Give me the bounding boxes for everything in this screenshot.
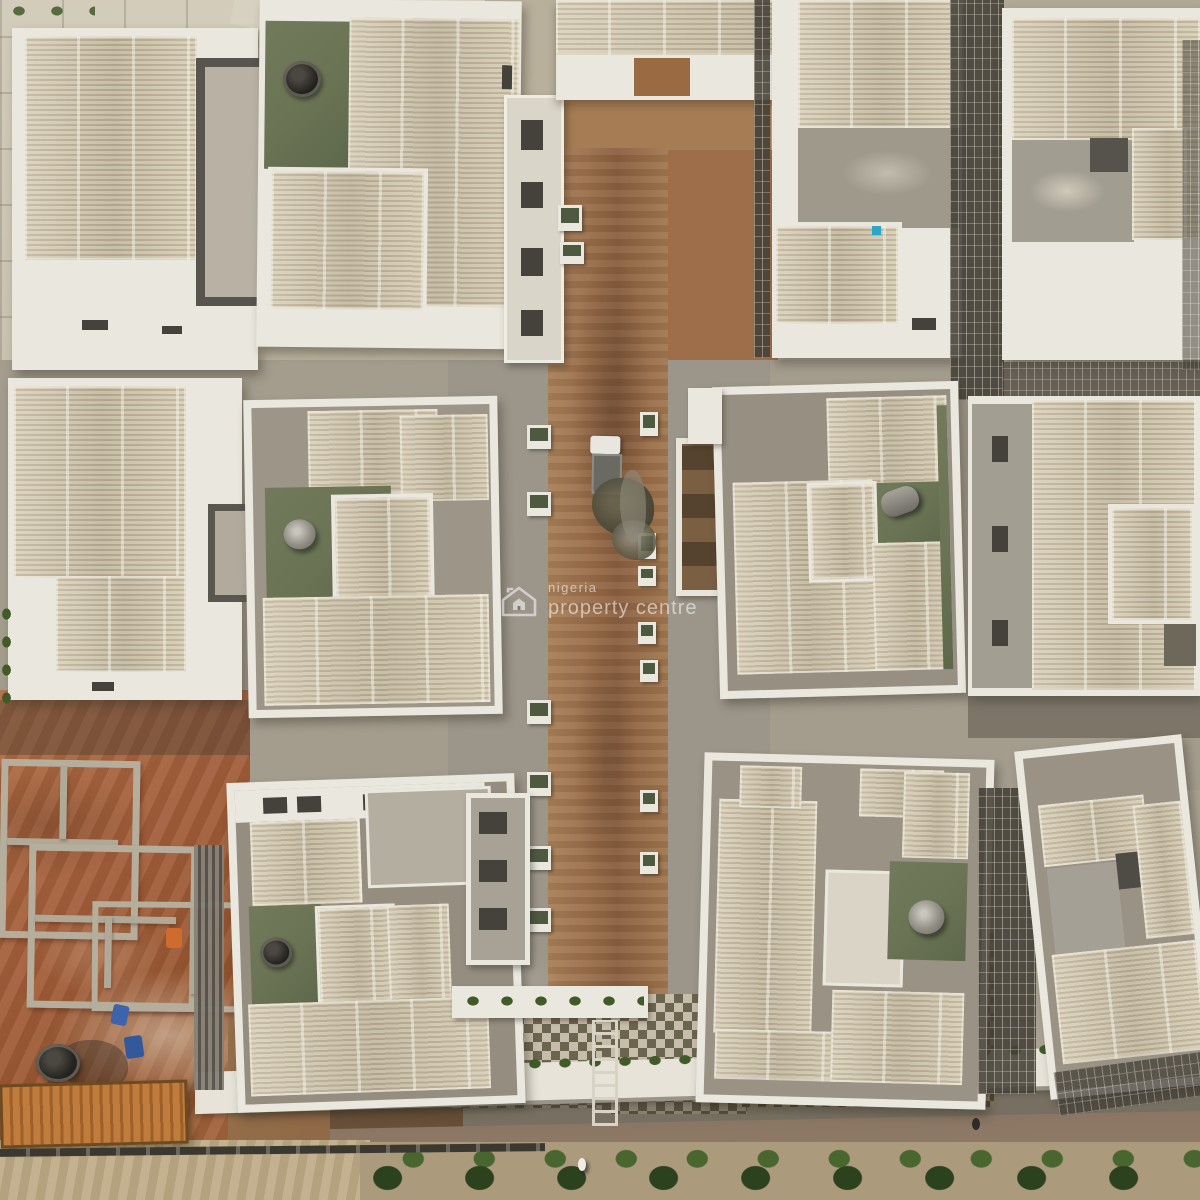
planter-shrubs xyxy=(456,992,644,1010)
weeds-left-edge xyxy=(0,600,13,710)
blue-marker xyxy=(872,226,881,235)
corrugated-roof xyxy=(1132,801,1194,939)
scaffolding xyxy=(754,0,770,358)
road-planter xyxy=(640,790,658,812)
building-bottom-center-right xyxy=(695,752,994,1109)
window-opening xyxy=(992,526,1008,552)
roof-opening xyxy=(297,796,322,813)
corrugated-roof xyxy=(263,594,491,706)
ladder xyxy=(592,1020,618,1126)
window-opening xyxy=(992,620,1008,646)
roof-opening xyxy=(263,797,288,814)
water-tank xyxy=(283,61,321,97)
corrugated-roof xyxy=(798,0,960,128)
water-tank xyxy=(36,1044,80,1082)
corrugated-roof xyxy=(1108,504,1196,624)
window-opening xyxy=(521,248,543,276)
building-top-left xyxy=(12,28,258,370)
building-shadow xyxy=(0,700,250,755)
road-planter xyxy=(640,852,658,874)
corrugated-roof xyxy=(714,1029,837,1082)
timber-stack xyxy=(194,845,224,1090)
small-white-structure xyxy=(688,388,722,444)
roof-opening xyxy=(162,326,182,334)
corrugated-roof xyxy=(267,167,429,315)
road-planter xyxy=(527,908,551,932)
corrugated-roof xyxy=(830,990,964,1085)
road-planter xyxy=(527,492,551,516)
corrugated-roof xyxy=(56,576,186,672)
building-middle-center-left xyxy=(243,396,503,718)
corrugated-roof xyxy=(772,222,902,328)
scaffolding xyxy=(1182,40,1200,370)
person xyxy=(972,1118,980,1130)
building-middle-left xyxy=(8,378,242,700)
road-side-structure xyxy=(504,95,564,363)
roof-notch xyxy=(1164,624,1196,666)
corrugated-roof xyxy=(713,799,817,1035)
roof-opening xyxy=(92,682,114,691)
building-middle-right xyxy=(968,396,1200,696)
window-opening xyxy=(521,182,543,208)
corrugated-roof xyxy=(25,36,197,260)
building-shadow xyxy=(968,696,1200,738)
blue-tarp xyxy=(124,1035,145,1059)
corrugated-roof xyxy=(250,818,363,906)
truck-cab xyxy=(590,436,620,455)
orange-equipment xyxy=(166,928,182,948)
window-opening xyxy=(992,436,1008,462)
opening xyxy=(479,908,507,930)
building-top-right-center xyxy=(772,0,962,358)
corrugated-roof xyxy=(806,481,879,583)
road-planter xyxy=(558,205,582,231)
person xyxy=(578,1158,586,1171)
corrugated-roof xyxy=(331,493,435,607)
window-opening xyxy=(521,310,543,336)
building-middle-center-right xyxy=(712,381,966,699)
road-planter xyxy=(640,660,658,682)
weeds-top-left xyxy=(0,0,95,42)
concrete-courtyard xyxy=(798,128,960,228)
plywood-door xyxy=(634,58,690,96)
road-planter xyxy=(527,772,551,796)
window-opening xyxy=(521,120,543,150)
scaffolding xyxy=(950,0,1004,400)
road-planter xyxy=(560,242,584,264)
road-planter xyxy=(640,412,658,436)
road-planter xyxy=(638,622,656,644)
corrugated-roof xyxy=(14,386,186,578)
corrugated-roof xyxy=(1012,18,1200,140)
roof-opening xyxy=(912,318,936,330)
corrugated-roof xyxy=(826,395,948,486)
road-planter xyxy=(638,566,656,586)
stair-structure xyxy=(466,793,530,965)
debris-pile xyxy=(620,470,646,542)
corrugated-roof xyxy=(902,771,970,859)
road-planter xyxy=(527,846,551,870)
building-top-center-left xyxy=(256,0,522,349)
dark-rooftop-box xyxy=(1090,138,1128,172)
building-top-right xyxy=(1002,8,1200,360)
road-planter xyxy=(527,700,551,724)
roof-opening xyxy=(502,65,512,89)
concrete-courtyard xyxy=(1047,862,1126,955)
planter-box-row xyxy=(452,986,648,1018)
roof-opening xyxy=(82,320,108,330)
corrugated-roof xyxy=(400,414,489,502)
corrugated-roof xyxy=(739,765,802,809)
aerial-construction-site-photo: nigeria property centre xyxy=(0,0,1200,1200)
opening xyxy=(479,860,507,882)
corrugated-roof xyxy=(1052,940,1200,1064)
road-planter xyxy=(527,425,551,449)
opening xyxy=(479,812,507,834)
shipping-container xyxy=(0,1080,189,1149)
